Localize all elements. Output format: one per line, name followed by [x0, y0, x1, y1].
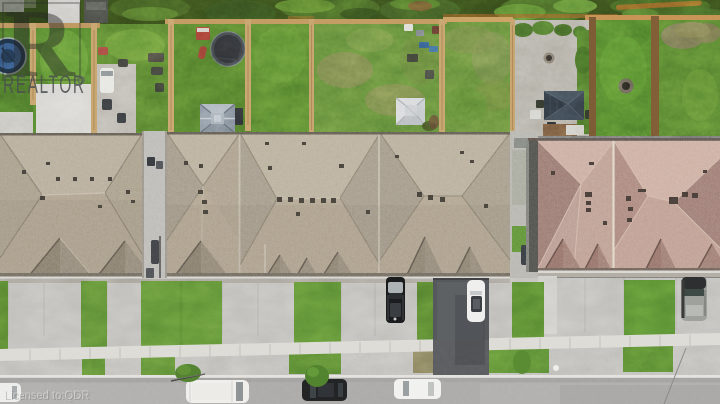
svg-text:REALTOR: REALTOR: [3, 71, 86, 99]
svg-text:Licensed to:QDR: Licensed to:QDR: [5, 390, 90, 404]
